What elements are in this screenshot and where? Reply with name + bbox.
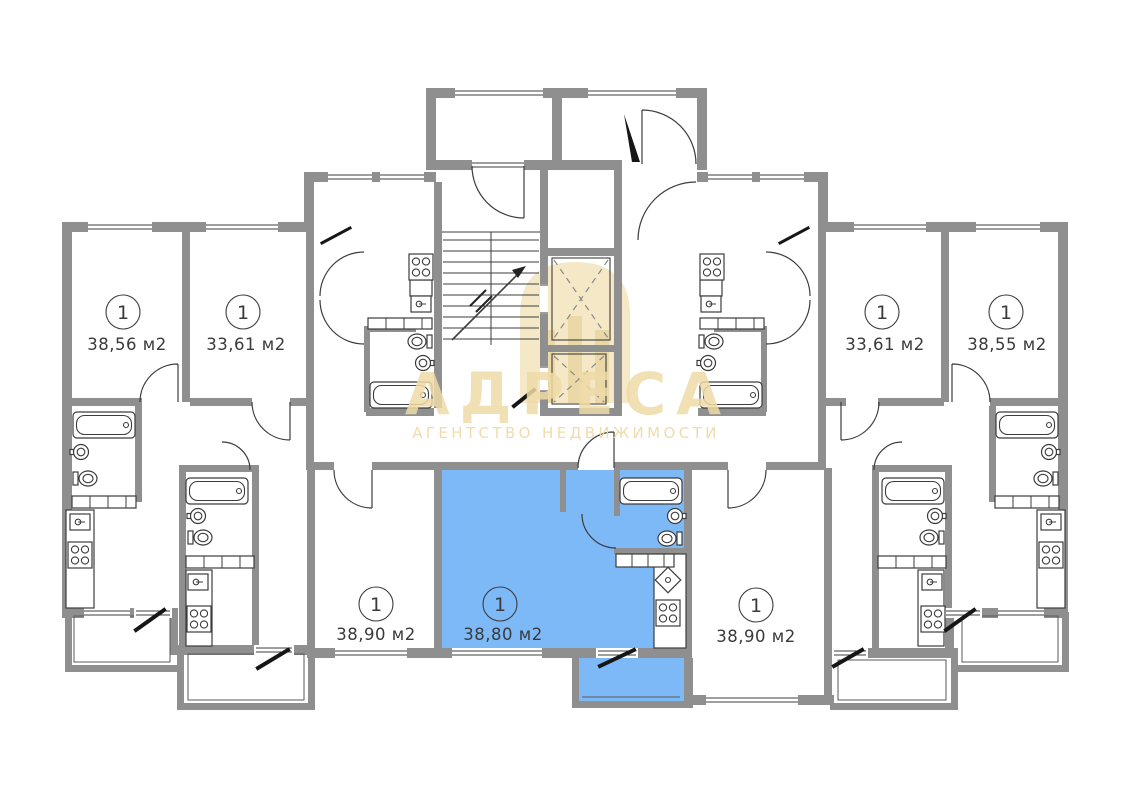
stove-icon [409, 254, 433, 280]
area-label: 38,55 м2 [967, 335, 1046, 354]
area-label: 38,90 м2 [336, 625, 415, 644]
bathtub-icon [186, 478, 248, 504]
apartment-38-80-selected[interactable] [442, 470, 684, 648]
kitchen-sink-icon [701, 296, 721, 312]
area-label: 38,80 м2 [463, 625, 542, 644]
kitchen-sink-icon [1041, 514, 1061, 530]
bathtub-icon [996, 412, 1058, 438]
stove-icon [187, 606, 211, 632]
watermark-subtitle: АГЕНТСТВО НЕДВИЖИМОСТИ [412, 424, 720, 442]
toilet-icon [920, 530, 944, 545]
unit-number: 1 [494, 594, 506, 616]
toilet-icon [1034, 471, 1058, 486]
watermark-title: АДРЕСА [405, 360, 731, 428]
stairs-direction-arrow [512, 266, 526, 278]
floor-plan-canvas: 1 38,56 м2 1 33,61 м2 1 33,61 м2 1 38,55… [0, 0, 1131, 800]
area-label: 38,56 м2 [87, 335, 166, 354]
unit-number: 1 [876, 302, 888, 324]
kitchen-sink-icon [922, 574, 942, 590]
stove-icon [921, 606, 945, 632]
toilet-icon [188, 530, 212, 545]
stove-icon [68, 542, 92, 568]
unit-number: 1 [370, 594, 382, 616]
washbasin-icon [187, 509, 206, 524]
area-label: 33,61 м2 [845, 335, 924, 354]
unit-number: 1 [1000, 302, 1012, 324]
toilet-icon [699, 334, 723, 349]
stove-icon [700, 254, 724, 280]
unit-number: 1 [750, 595, 762, 617]
washbasin-icon [1042, 445, 1061, 460]
kitchen-sink-icon [188, 574, 208, 590]
area-label: 33,61 м2 [206, 335, 285, 354]
area-label: 38,90 м2 [716, 627, 795, 646]
unit-number: 1 [117, 302, 129, 324]
door-leaf-wedge [624, 114, 640, 162]
unit-number: 1 [237, 302, 249, 324]
toilet-icon [408, 334, 432, 349]
stove-icon [1039, 542, 1063, 568]
apartment-38-90-right[interactable] [692, 470, 824, 695]
watermark: АДРЕСА АГЕНТСТВО НЕДВИЖИМОСТИ [405, 360, 731, 442]
washbasin-icon [928, 509, 947, 524]
toilet-icon [73, 471, 97, 486]
kitchen-sink-icon [411, 296, 431, 312]
washbasin-icon [70, 445, 89, 460]
bathtub-icon [73, 412, 135, 438]
kitchen-sink-icon [70, 514, 90, 530]
floor-plan-page: 1 38,56 м2 1 33,61 м2 1 33,61 м2 1 38,55… [0, 0, 1131, 800]
bathtub-icon [882, 478, 944, 504]
